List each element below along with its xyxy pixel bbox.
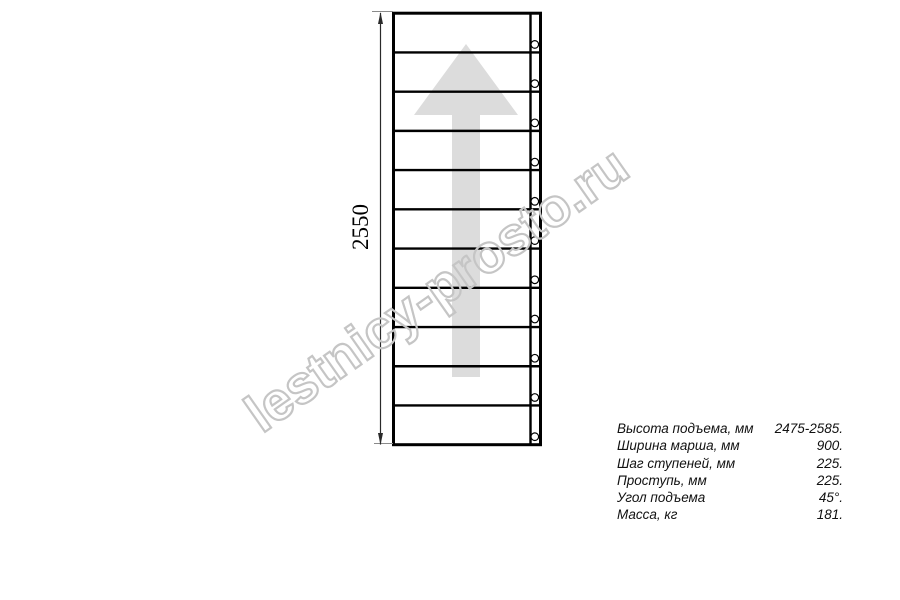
- spec-row-angle: Угол подъема 45°.: [617, 489, 843, 506]
- mounting-hole-icon: [531, 315, 539, 323]
- mounting-hole-icon: [531, 394, 539, 402]
- spec-label: Угол подъема: [617, 489, 705, 506]
- spec-table: Высота подъема, мм 2475-2585. Ширина мар…: [617, 420, 843, 524]
- spec-value: 181.: [817, 506, 843, 523]
- mounting-hole-icon: [531, 41, 539, 49]
- spec-label: Высота подъема, мм: [617, 420, 753, 437]
- mounting-hole-icon: [531, 276, 539, 284]
- height-dimension-label: 2550: [348, 204, 373, 250]
- spec-row-height: Высота подъема, мм 2475-2585.: [617, 420, 843, 437]
- spec-value: 45°.: [819, 489, 843, 506]
- spec-label: Ширина марша, мм: [617, 437, 740, 454]
- spec-row-step-pitch: Шаг ступеней, мм 225.: [617, 455, 843, 472]
- mounting-hole-icon: [531, 354, 539, 362]
- drawing-canvas: 2550 lestnicy-prosto.ru Высота подъема, …: [0, 0, 900, 600]
- watermark-text: lestnicy-prosto.ru: [234, 135, 639, 443]
- spec-label: Шаг ступеней, мм: [617, 455, 735, 472]
- mounting-hole-icon: [531, 433, 539, 441]
- spec-label: Масса, кг: [617, 506, 677, 523]
- spec-row-width: Ширина марша, мм 900.: [617, 437, 843, 454]
- spec-label: Проступь, мм: [617, 472, 707, 489]
- spec-row-mass: Масса, кг 181.: [617, 506, 843, 523]
- spec-value: 225.: [817, 455, 843, 472]
- spec-value: 900.: [817, 437, 843, 454]
- spec-row-tread: Проступь, мм 225.: [617, 472, 843, 489]
- mounting-hole-icon: [531, 80, 539, 88]
- mounting-hole-icon: [531, 158, 539, 166]
- spec-value: 2475-2585.: [775, 420, 843, 437]
- dimension-arrowhead-up-icon: [378, 12, 383, 24]
- mounting-hole-icon: [531, 119, 539, 127]
- spec-value: 225.: [817, 472, 843, 489]
